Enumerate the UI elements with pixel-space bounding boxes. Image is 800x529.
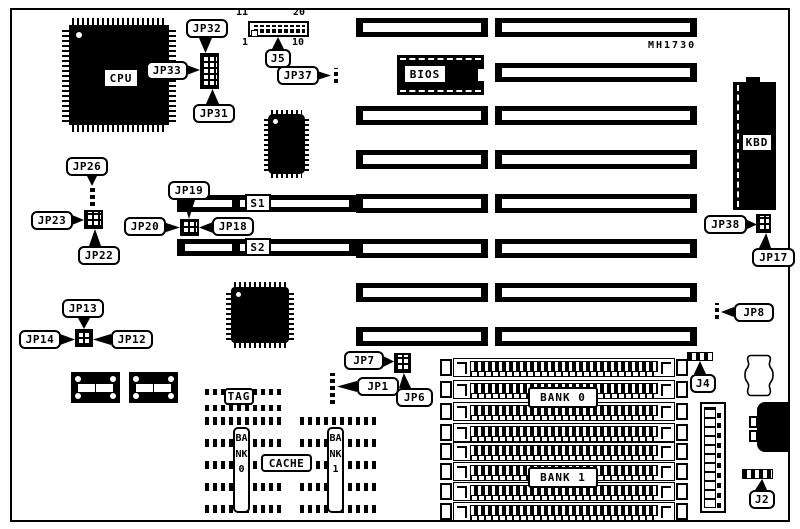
slot-contact — [363, 23, 481, 32]
jp31-jp32-jp33-block — [200, 53, 219, 89]
simm-frame — [453, 442, 675, 461]
isa-slot — [356, 283, 488, 302]
simm-latch — [661, 406, 671, 418]
cpu-pin1-dot — [76, 32, 82, 38]
simm-pins — [470, 516, 658, 520]
j4-connector — [687, 352, 713, 361]
jp8-callout: JP8 — [734, 303, 774, 322]
simm-end-cap — [676, 381, 688, 398]
simm-end-cap — [440, 381, 452, 398]
board-model-text: MH1730 — [648, 40, 696, 51]
asic-chip-middle — [226, 282, 294, 348]
simm-latch — [457, 506, 467, 518]
simm-latch — [457, 427, 467, 439]
pad-dot — [133, 376, 139, 382]
chip-pin1-dot — [236, 292, 241, 297]
simm-latch — [661, 362, 671, 374]
din-connector-tab — [749, 416, 758, 428]
simm-end-cap — [440, 424, 452, 441]
pad-dot — [110, 376, 116, 382]
j2-callout: J2 — [749, 490, 775, 509]
isa-slot — [356, 194, 488, 213]
simm-socket — [440, 358, 688, 377]
simm-pins — [470, 496, 658, 500]
simm-end-cap — [440, 463, 452, 480]
jp20-callout: JP20 — [124, 217, 166, 236]
isa-slot — [495, 327, 697, 346]
din-connector-tab — [749, 430, 758, 442]
simm-socket — [440, 502, 688, 521]
slot-contact — [185, 244, 232, 251]
simm-latch — [661, 446, 671, 458]
bios-chip: BIOS — [397, 55, 484, 95]
cache-chip-row — [293, 415, 381, 427]
jp37-callout: JP37 — [277, 66, 319, 85]
simm-end-cap — [676, 503, 688, 520]
simm-pins — [470, 437, 658, 441]
simm-end-cap — [676, 403, 688, 420]
slot-contact — [502, 332, 690, 341]
cpu-pins-top — [72, 18, 166, 25]
isa-slot — [495, 63, 697, 82]
simm-end-cap — [676, 424, 688, 441]
simm-latch — [457, 384, 467, 396]
simm-pins — [470, 372, 658, 376]
simm-frame — [453, 358, 675, 377]
slot-contact — [502, 23, 690, 32]
tag-label: TAG — [224, 388, 254, 405]
jp32-callout: JP32 — [186, 19, 228, 38]
jp37-pin-strip — [332, 66, 340, 88]
jp26-pin-strip — [88, 185, 97, 211]
din-keyboard-connector — [757, 402, 788, 452]
slot-contact — [502, 155, 690, 164]
simm-end-cap — [440, 359, 452, 376]
simm-end-cap — [676, 463, 688, 480]
simm-contacts — [470, 445, 658, 456]
slot-contact — [363, 199, 481, 208]
cache-chip-row — [198, 415, 285, 427]
jp1-callout: JP1 — [357, 377, 399, 396]
pad-dot — [168, 376, 174, 382]
slot-contact — [363, 111, 481, 120]
simm-latch — [457, 466, 467, 478]
cache-bank1-label: BANK1 — [327, 427, 344, 513]
slot-contact — [502, 199, 690, 208]
slot-contact — [502, 244, 690, 253]
simm-pins — [470, 456, 658, 460]
asic-chip-upper — [264, 110, 309, 178]
isa-slot — [356, 150, 488, 169]
slot-contact — [363, 244, 481, 253]
jp1-pin-strip — [328, 371, 337, 409]
s1-label: S1 — [245, 194, 271, 212]
j5-pin-number-10: 10 — [292, 37, 304, 48]
isa-slot — [356, 106, 488, 125]
j5-pin-number-1: 1 — [242, 37, 248, 48]
isa-slot — [356, 327, 488, 346]
j5-pin-number-20: 20 — [293, 7, 305, 18]
pad-dot — [75, 376, 81, 382]
pad-dot — [110, 393, 116, 399]
isa-slot — [495, 194, 697, 213]
simm-end-cap — [440, 503, 452, 520]
slot-contact — [502, 288, 690, 297]
pad-dot — [75, 393, 81, 399]
kbd-chip: KBD — [733, 82, 776, 210]
j5-pin-number-11: 11 — [236, 7, 248, 18]
jp22-jp23-block — [84, 210, 103, 229]
simm-latch — [661, 506, 671, 518]
crimp-outline-component — [744, 354, 774, 397]
pad-slot — [154, 384, 171, 392]
jp18-callout: JP18 — [212, 217, 254, 236]
simm-end-cap — [440, 443, 452, 460]
jp14-callout: JP14 — [19, 330, 61, 349]
simm-end-cap — [440, 483, 452, 500]
slot-contact — [502, 68, 690, 77]
jp23-callout: JP23 — [31, 211, 73, 230]
j5-pin1-marker — [251, 30, 258, 37]
slot-contact — [502, 111, 690, 120]
cpu-pins-bottom — [72, 125, 166, 132]
isa-slot — [495, 283, 697, 302]
simm-contacts — [470, 426, 658, 437]
isa-slot — [495, 106, 697, 125]
cache-bank0-label: BANK0 — [233, 427, 250, 513]
jp17-jp38-block — [756, 214, 771, 233]
pad-component — [71, 372, 120, 403]
jp13-callout: JP13 — [62, 299, 104, 318]
simm-socket — [440, 442, 688, 461]
power-connector-pins — [704, 407, 716, 508]
pad-component — [129, 372, 178, 403]
isa-slot — [495, 239, 697, 258]
simm-contacts — [470, 361, 658, 372]
simm-end-cap — [676, 483, 688, 500]
pad-dot — [133, 393, 139, 399]
simm-pins — [470, 416, 658, 420]
jp26-callout: JP26 — [66, 157, 108, 176]
simm-latch — [661, 466, 671, 478]
jp6-callout: JP6 — [396, 388, 433, 407]
bios-notch — [478, 69, 485, 81]
slot-contact — [363, 288, 481, 297]
simm-socket — [440, 423, 688, 442]
jp18-jp19-jp20-block — [180, 219, 199, 236]
j4-callout: J4 — [690, 374, 716, 393]
motherboard-diagram: CPU JP32 JP33 JP31 11 20 1 10 J5 JP37 BI… — [0, 0, 800, 529]
simm-bank0-label: BANK 0 — [528, 387, 598, 408]
chip-pin1-dot — [273, 119, 278, 124]
simm-end-cap — [440, 403, 452, 420]
jp8-pin-strip — [713, 301, 721, 324]
kbd-label: KBD — [742, 134, 772, 151]
cache-label: CACHE — [261, 454, 312, 472]
jp6-jp7-block — [394, 353, 411, 373]
slot-contact — [363, 155, 481, 164]
jp7-callout: JP7 — [344, 351, 384, 370]
jp12-callout: JP12 — [111, 330, 153, 349]
cpu-pins-left — [62, 28, 69, 122]
pad-slot — [96, 384, 113, 392]
power-connector-keys — [717, 410, 721, 508]
kbd-top-tab — [746, 77, 760, 83]
isa-slot — [356, 239, 488, 258]
s2-slot: S2 — [177, 239, 357, 256]
power-connector — [700, 402, 726, 513]
jp17-callout: JP17 — [752, 248, 795, 267]
pad-slot — [136, 384, 153, 392]
jp33-callout: JP33 — [146, 61, 188, 80]
jp22-callout: JP22 — [78, 246, 120, 265]
bios-label: BIOS — [404, 65, 446, 83]
isa-slot — [495, 150, 697, 169]
j2-connector — [742, 469, 773, 479]
jp19-callout: JP19 — [168, 181, 210, 200]
simm-contacts — [470, 505, 658, 516]
simm-latch — [661, 486, 671, 498]
jp31-callout: JP31 — [193, 104, 235, 123]
simm-latch — [457, 362, 467, 374]
simm-end-cap — [676, 359, 688, 376]
simm-latch — [457, 486, 467, 498]
isa-slot — [356, 18, 488, 37]
simm-latch — [457, 406, 467, 418]
jp12-jp13-jp14-block — [75, 329, 93, 347]
simm-frame — [453, 423, 675, 442]
pad-slot — [78, 384, 95, 392]
simm-frame — [453, 502, 675, 521]
simm-end-cap — [676, 443, 688, 460]
slot-contact — [363, 332, 481, 341]
s2-label: S2 — [245, 238, 271, 256]
jp38-callout: JP38 — [704, 215, 747, 234]
simm-bank1-label: BANK 1 — [528, 467, 598, 488]
isa-slot — [495, 18, 697, 37]
simm-latch — [457, 446, 467, 458]
pad-dot — [168, 393, 174, 399]
simm-latch — [661, 384, 671, 396]
simm-latch — [661, 427, 671, 439]
cpu-label: CPU — [105, 70, 137, 86]
